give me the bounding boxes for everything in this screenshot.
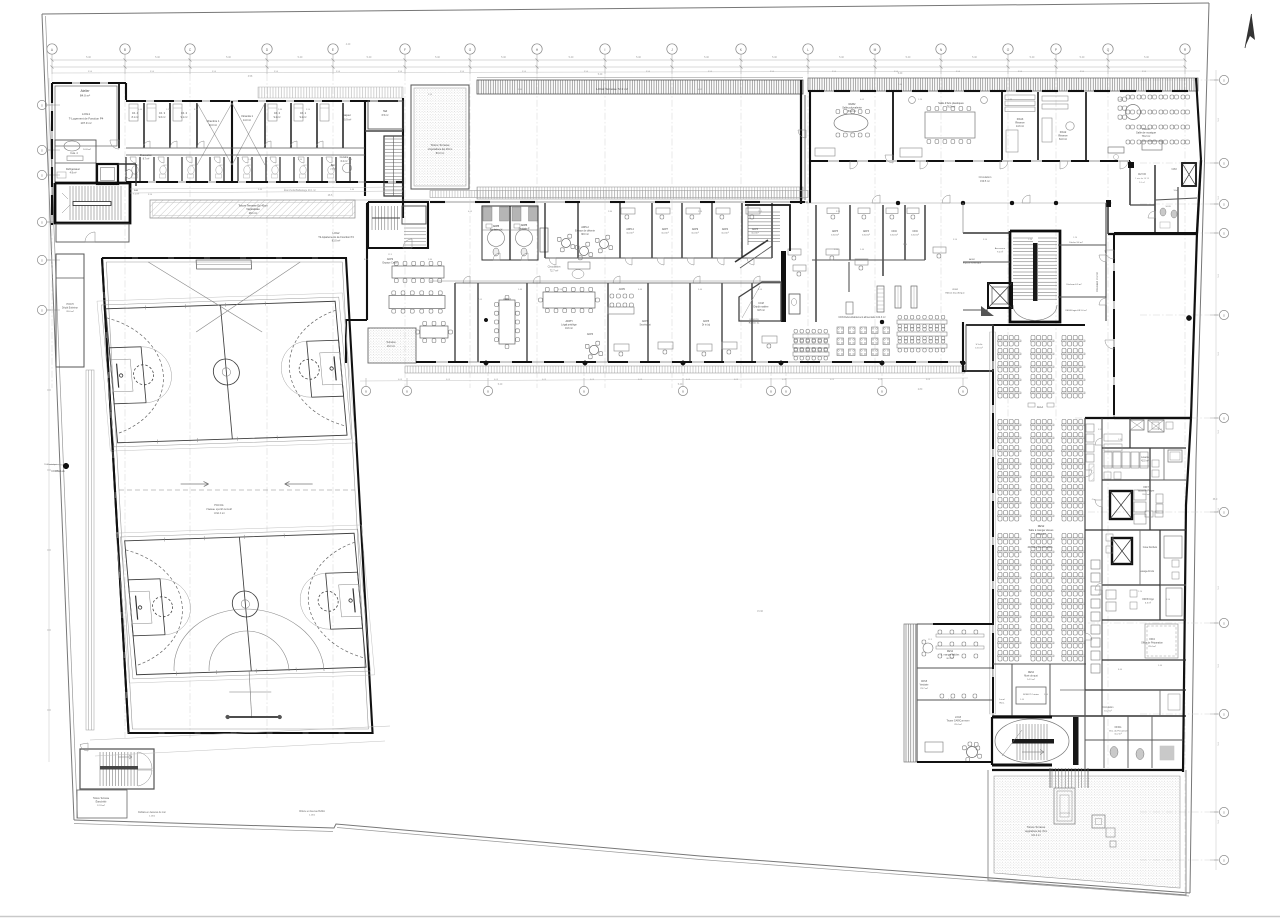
svg-text:FOA3: FOA3 bbox=[1017, 118, 1024, 121]
svg-text:LOG1: LOG1 bbox=[82, 112, 90, 116]
svg-text:G: G bbox=[1223, 712, 1225, 716]
svg-text:RES2: RES2 bbox=[1038, 525, 1045, 528]
svg-text:WC: WC bbox=[163, 165, 167, 167]
svg-text:WC: WC bbox=[191, 165, 195, 167]
svg-text:ADP4: ADP4 bbox=[722, 228, 729, 231]
svg-text:M: M bbox=[874, 48, 877, 52]
svg-text:76.5 m²: 76.5 m² bbox=[947, 106, 956, 109]
svg-text:CDI4: CDI4 bbox=[912, 231, 918, 233]
svg-text:5.40: 5.40 bbox=[501, 56, 506, 59]
svg-text:Laverie: Laverie bbox=[1141, 456, 1150, 459]
svg-text:Séjour: Séjour bbox=[343, 113, 351, 117]
svg-text:AULA: AULA bbox=[1037, 406, 1044, 409]
svg-text:Evacuation: Evacuation bbox=[140, 154, 152, 157]
svg-text:28.0 m²: 28.0 m² bbox=[66, 310, 74, 313]
svg-text:ADB2: ADB2 bbox=[969, 258, 975, 261]
svg-text:Légal privilège: Légal privilège bbox=[561, 324, 577, 327]
svg-text:Étanchéité/Ballastage 20.1 m²: Étanchéité/Ballastage 20.1 m² bbox=[284, 189, 316, 192]
svg-text:ADPN: ADPN bbox=[619, 288, 626, 291]
svg-text:5.40: 5.40 bbox=[772, 56, 777, 59]
svg-text:42.0 m²: 42.0 m² bbox=[1141, 460, 1149, 463]
svg-text:WC: WC bbox=[247, 165, 251, 167]
svg-text:B: B bbox=[406, 389, 408, 393]
svg-text:VdB3: VdB3 bbox=[1171, 169, 1177, 171]
svg-text:13.0 m²: 13.0 m² bbox=[831, 233, 839, 236]
svg-text:5.40: 5.40 bbox=[906, 56, 911, 59]
svg-text:B: B bbox=[962, 389, 964, 393]
svg-text:5.40: 5.40 bbox=[367, 56, 372, 59]
svg-text:14.6 m²: 14.6 m² bbox=[1016, 125, 1024, 128]
svg-text:G: G bbox=[41, 148, 43, 152]
svg-text:B: B bbox=[881, 389, 883, 393]
svg-text:G: G bbox=[1223, 858, 1225, 862]
svg-text:29.4 m²: 29.4 m² bbox=[954, 723, 962, 726]
svg-text:Plateau sportif évolutif: Plateau sportif évolutif bbox=[206, 507, 232, 511]
svg-text:8.1 m²: 8.1 m² bbox=[132, 116, 139, 119]
svg-text:L: L bbox=[807, 48, 809, 52]
svg-text:13.0 m²: 13.0 m² bbox=[862, 233, 870, 236]
svg-text:5.40: 5.40 bbox=[704, 56, 709, 59]
svg-text:10.8 m²: 10.8 m² bbox=[83, 148, 91, 151]
svg-text:G: G bbox=[1223, 161, 1225, 165]
svg-text:P: P bbox=[1055, 48, 1057, 52]
svg-text:5.40: 5.40 bbox=[839, 56, 844, 59]
svg-text:Espace Caser: Espace Caser bbox=[382, 262, 397, 265]
svg-text:ADP14: ADP14 bbox=[626, 228, 634, 231]
svg-text:S.DB: S.DB bbox=[1165, 206, 1171, 208]
svg-text:4.40: 4.40 bbox=[346, 44, 351, 46]
svg-text:Réserve: Réserve bbox=[1015, 122, 1025, 125]
svg-text:28.1 m²: 28.1 m² bbox=[249, 212, 258, 215]
svg-text:Circulation: Circulation bbox=[979, 175, 992, 179]
svg-text:19.6 m²: 19.6 m² bbox=[565, 327, 573, 330]
svg-text:1150.0 m²: 1150.0 m² bbox=[214, 512, 225, 515]
svg-text:Circulation 14.2 m²: Circulation 14.2 m² bbox=[1096, 272, 1099, 292]
svg-text:RHB2: RHB2 bbox=[849, 102, 856, 106]
svg-text:232.3 m²: 232.3 m² bbox=[1036, 533, 1046, 536]
svg-text:DEHOR: DEHOR bbox=[1138, 174, 1147, 176]
svg-text:Local: Local bbox=[999, 699, 1005, 701]
svg-text:11.2 m²: 11.2 m² bbox=[1114, 733, 1122, 736]
svg-text:G: G bbox=[1223, 202, 1225, 206]
svg-text:Atelier: Atelier bbox=[80, 89, 90, 93]
svg-text:72.7 m²: 72.7 m² bbox=[550, 270, 559, 273]
svg-text:14.0 m²: 14.0 m² bbox=[243, 119, 251, 122]
svg-text:Clôture en Avenue Buffon: Clôture en Avenue Buffon bbox=[299, 810, 326, 813]
svg-text:CCM: CCM bbox=[758, 302, 763, 305]
svg-text:Edition discothèque: Edition discothèque bbox=[945, 291, 965, 294]
svg-text:B: B bbox=[785, 389, 787, 393]
svg-text:2.80: 2.80 bbox=[918, 389, 923, 391]
svg-text:Ch. 2: Ch. 2 bbox=[274, 111, 281, 115]
svg-text:Décham 6.5 m²: Décham 6.5 m² bbox=[1067, 283, 1082, 286]
svg-text:ADP8: ADP8 bbox=[703, 320, 710, 323]
svg-text:ADPB: ADPB bbox=[521, 224, 528, 227]
svg-text:1.13m: 1.13m bbox=[149, 816, 155, 818]
svg-text:Sanitaires H: Sanitaires H bbox=[490, 228, 503, 231]
svg-text:Terrasse: Terrasse bbox=[386, 341, 396, 344]
svg-text:T-Logement de Fonction P4: T-Logement de Fonction P4 bbox=[69, 117, 104, 121]
svg-text:WC: WC bbox=[303, 165, 307, 167]
svg-text:107.9 m²: 107.9 m² bbox=[80, 121, 91, 125]
svg-text:Déblais en dessous du mur: Déblais en dessous du mur bbox=[138, 811, 166, 814]
svg-text:Dépôt matière: Dépôt matière bbox=[753, 306, 769, 309]
svg-text:1 min de 10 13: 1 min de 10 13 bbox=[1135, 178, 1150, 180]
svg-text:Chambre 1: Chambre 1 bbox=[207, 119, 220, 123]
svg-text:23.7 m²: 23.7 m² bbox=[920, 687, 928, 690]
svg-text:F: F bbox=[404, 48, 406, 52]
svg-text:B: B bbox=[770, 389, 772, 393]
svg-text:13.5 m²: 13.5 m² bbox=[975, 346, 983, 349]
svg-text:20.9 m²: 20.9 m² bbox=[343, 119, 352, 122]
svg-text:S.Vslle: S.Vslle bbox=[976, 344, 984, 346]
svg-text:CORBEILLE: CORBEILLE bbox=[51, 470, 65, 473]
svg-text:9.1 m²: 9.1 m² bbox=[181, 116, 188, 119]
svg-text:ADP9: ADP9 bbox=[387, 258, 394, 261]
svg-text:78.2 m²: 78.2 m² bbox=[1142, 135, 1151, 138]
svg-text:Bur.: Bur. bbox=[331, 164, 336, 167]
svg-text:ADP7: ADP7 bbox=[662, 228, 669, 231]
svg-text:OFF5 Frigo: OFF5 Frigo bbox=[1142, 598, 1154, 601]
svg-text:Tisane GAR/Com-serv: Tisane GAR/Com-serv bbox=[946, 720, 970, 723]
svg-text:400 sans personnalisés: 400 sans personnalisés bbox=[1027, 546, 1053, 549]
svg-text:S. manger adultes: S. manger adultes bbox=[941, 654, 960, 657]
svg-text:Salle polyvalente: Salle polyvalente bbox=[842, 106, 862, 110]
svg-text:Rest.: Rest. bbox=[999, 701, 1004, 704]
svg-text:Secrétariat: Secrétariat bbox=[639, 324, 650, 327]
svg-text:84.0 m²: 84.0 m² bbox=[80, 94, 90, 98]
svg-text:Toiture Terrasse: Toiture Terrasse bbox=[430, 143, 450, 147]
svg-text:5.40: 5.40 bbox=[226, 56, 231, 59]
svg-text:ROBOT Cuisine: ROBOT Cuisine bbox=[1023, 694, 1039, 696]
svg-text:5.40: 5.40 bbox=[569, 56, 574, 59]
svg-text:Lavage-Fruits: Lavage-Fruits bbox=[1140, 570, 1155, 573]
svg-text:9.2 m²: 9.2 m² bbox=[300, 116, 307, 119]
svg-text:LOG2: LOG2 bbox=[333, 231, 340, 235]
svg-text:Vaisselle-Propre: Vaisselle-Propre bbox=[1138, 490, 1155, 493]
svg-text:28.5: 28.5 bbox=[328, 195, 333, 197]
svg-text:10.0 m²: 10.0 m² bbox=[209, 124, 217, 127]
svg-text:Cave Déchets: Cave Déchets bbox=[1143, 546, 1158, 549]
svg-text:FOA2: FOA2 bbox=[1060, 131, 1067, 134]
svg-text:5.40: 5.40 bbox=[898, 73, 903, 75]
svg-text:G: G bbox=[1223, 621, 1225, 625]
svg-text:Décha 3.4 m²: Décha 3.4 m² bbox=[1069, 241, 1082, 244]
svg-text:12.9 m²: 12.9 m² bbox=[97, 804, 105, 807]
svg-text:159.5 m²: 159.5 m² bbox=[980, 180, 990, 183]
svg-text:Ch. 4: Ch. 4 bbox=[132, 111, 139, 115]
svg-text:5.40: 5.40 bbox=[155, 56, 160, 59]
svg-text:16.0 m²: 16.0 m² bbox=[387, 345, 395, 348]
svg-text:1.13m: 1.13m bbox=[309, 815, 315, 817]
svg-text:14.1 m²: 14.1 m² bbox=[1027, 678, 1035, 681]
svg-text:B: B bbox=[583, 389, 585, 393]
svg-text:G: G bbox=[41, 258, 43, 262]
svg-text:OFF2: OFF2 bbox=[1149, 639, 1156, 641]
svg-text:Véranda 1: Véranda 1 bbox=[241, 114, 254, 118]
svg-text:G: G bbox=[41, 173, 43, 177]
svg-text:11.4 m²: 11.4 m² bbox=[721, 232, 729, 235]
svg-text:Toiture Terrasse: Toiture Terrasse bbox=[93, 797, 110, 800]
svg-text:5.40: 5.40 bbox=[1144, 56, 1149, 59]
svg-text:CDB2: CDB2 bbox=[952, 289, 959, 291]
svg-text:G: G bbox=[1223, 313, 1225, 317]
svg-text:5.40: 5.40 bbox=[1030, 56, 1035, 59]
svg-text:RES0: RES0 bbox=[1028, 672, 1035, 674]
svg-text:G: G bbox=[41, 220, 43, 224]
svg-text:Sanitaire F: Sanitaire F bbox=[518, 227, 530, 230]
svg-text:5.40: 5.40 bbox=[1080, 56, 1085, 59]
svg-text:ADPL2: ADPL2 bbox=[581, 226, 589, 229]
svg-text:5.40: 5.40 bbox=[636, 56, 641, 59]
svg-text:Ch. 1: Ch. 1 bbox=[300, 111, 307, 115]
svg-text:ADPH: ADPH bbox=[566, 320, 573, 323]
svg-text:5.40: 5.40 bbox=[435, 56, 440, 59]
svg-text:29.4 m²: 29.4 m² bbox=[1148, 645, 1156, 648]
svg-text:Dépôt Extérieur: Dépôt Extérieur bbox=[62, 307, 78, 310]
svg-text:5.40: 5.40 bbox=[678, 384, 683, 386]
svg-text:Réserve: Réserve bbox=[1058, 135, 1068, 138]
svg-text:11.4 m²: 11.4 m² bbox=[661, 232, 669, 235]
svg-text:CDN5: CDN5 bbox=[921, 681, 928, 683]
svg-text:CDN Debout/tablement alimenta: CDN Debout/tablement alimentaire 102.3 m… bbox=[838, 316, 885, 319]
svg-text:Toiture Terrasse Ep.40cm: Toiture Terrasse Ep.40cm bbox=[238, 204, 267, 208]
svg-text:3.58: 3.58 bbox=[248, 76, 253, 78]
svg-text:5.40: 5.40 bbox=[298, 56, 303, 59]
svg-text:RdB: RdB bbox=[134, 190, 139, 192]
svg-text:15.96: 15.96 bbox=[757, 611, 763, 613]
svg-text:16.2 m²: 16.2 m² bbox=[1104, 709, 1112, 712]
svg-text:13.0 m²: 13.0 m² bbox=[890, 233, 898, 236]
svg-text:B: B bbox=[124, 48, 126, 52]
svg-text:ADP1: ADP1 bbox=[642, 320, 649, 323]
svg-text:G: G bbox=[1223, 78, 1225, 82]
svg-text:ADPB: ADPB bbox=[493, 225, 500, 228]
svg-text:POCH4: POCH4 bbox=[214, 503, 224, 507]
svg-text:Mont-du-quai: Mont-du-quai bbox=[1024, 675, 1038, 678]
svg-text:B: B bbox=[682, 389, 684, 393]
svg-text:Espace de détente: Espace de détente bbox=[575, 230, 596, 233]
svg-text:33.5 m²: 33.5 m² bbox=[757, 309, 765, 312]
svg-text:Espace numérique: Espace numérique bbox=[963, 261, 982, 264]
svg-text:Salle d'Arts plastiques: Salle d'Arts plastiques bbox=[938, 101, 964, 105]
svg-text:G: G bbox=[1223, 231, 1225, 235]
svg-text:ADP10: ADP10 bbox=[503, 298, 511, 301]
svg-text:5.3 m²: 5.3 m² bbox=[1145, 602, 1151, 605]
svg-text:WbB: WbB bbox=[1174, 190, 1179, 192]
svg-text:83.0 m²: 83.0 m² bbox=[436, 152, 445, 155]
svg-text:B: B bbox=[487, 389, 489, 393]
svg-text:6.5 m²: 6.5 m² bbox=[382, 114, 389, 117]
svg-text:ADP3: ADP3 bbox=[863, 230, 870, 233]
svg-text:ADP5: ADP5 bbox=[832, 230, 839, 233]
svg-text:Circulation: Circulation bbox=[548, 265, 561, 269]
svg-text:G: G bbox=[41, 103, 43, 107]
svg-text:POCH: POCH bbox=[67, 303, 74, 306]
svg-text:LOG2 Terrasse 72.3 m²: LOG2 Terrasse 72.3 m² bbox=[596, 87, 627, 91]
svg-text:Ascenseur: Ascenseur bbox=[995, 247, 1006, 250]
svg-text:5.40: 5.40 bbox=[498, 384, 503, 386]
svg-text:I: I bbox=[605, 48, 606, 52]
svg-text:9.6 m²: 9.6 m² bbox=[159, 116, 166, 119]
svg-text:5.40: 5.40 bbox=[598, 74, 603, 76]
svg-text:Circulation: Circulation bbox=[1103, 706, 1115, 709]
svg-text:OFF11: OFF11 bbox=[1115, 727, 1123, 729]
svg-text:Dr in (a): Dr in (a) bbox=[702, 324, 711, 327]
svg-text:WC: WC bbox=[275, 165, 279, 167]
svg-text:36.3 m²: 36.3 m² bbox=[946, 657, 954, 660]
svg-text:13.0 m²: 13.0 m² bbox=[911, 233, 919, 236]
svg-text:G: G bbox=[1223, 416, 1225, 420]
svg-text:T2-Apartements de Fonction P4: T2-Apartements de Fonction P4 bbox=[318, 236, 354, 239]
svg-text:Étanchéité: Étanchéité bbox=[96, 801, 108, 804]
svg-text:OFF7: OFF7 bbox=[1143, 487, 1150, 489]
svg-text:Salle à manger élèves: Salle à manger élèves bbox=[1029, 529, 1054, 532]
svg-text:101.2 m²: 101.2 m² bbox=[1031, 834, 1041, 837]
svg-text:2.0 m²: 2.0 m² bbox=[1139, 181, 1145, 184]
svg-text:LOG5: LOG5 bbox=[955, 717, 962, 719]
svg-text:Réfrigérateur: Réfrigérateur bbox=[66, 168, 80, 171]
svg-text:7.0 m²: 7.0 m² bbox=[997, 250, 1003, 253]
svg-text:9.2 m²: 9.2 m² bbox=[274, 116, 281, 119]
svg-text:G: G bbox=[41, 308, 43, 312]
svg-text:Végétalisée Ep.30cm: Végétalisée Ep.30cm bbox=[428, 147, 453, 151]
svg-text:Cuis. 4: Cuis. 4 bbox=[70, 152, 78, 155]
svg-text:E: E bbox=[332, 48, 334, 52]
svg-text:11.4 m²: 11.4 m² bbox=[626, 232, 634, 235]
svg-text:Office de Préparation: Office de Préparation bbox=[1141, 642, 1163, 645]
svg-text:Ch. 2: Ch. 2 bbox=[181, 111, 188, 115]
svg-text:Routine ka: Routine ka bbox=[749, 321, 760, 324]
svg-text:Ch. 3: Ch. 3 bbox=[159, 111, 166, 115]
svg-text:8.7 m²: 8.7 m² bbox=[143, 157, 150, 160]
svg-text:Toiture Terrasse: Toiture Terrasse bbox=[1027, 825, 1046, 829]
svg-text:Vestiaire: Vestiaire bbox=[920, 684, 930, 687]
svg-text:B: B bbox=[365, 389, 367, 393]
svg-text:Salle de musique: Salle de musique bbox=[1136, 131, 1156, 135]
svg-text:53.2 m²: 53.2 m² bbox=[848, 110, 857, 113]
svg-text:64.0 m²: 64.0 m² bbox=[1059, 138, 1067, 141]
svg-text:WC: WC bbox=[219, 165, 223, 167]
svg-text:RES2: RES2 bbox=[947, 650, 954, 653]
svg-text:4.9 m²: 4.9 m² bbox=[70, 172, 77, 175]
svg-text:Végétalisée: Végétalisée bbox=[246, 207, 260, 211]
svg-text:CDI4: CDI4 bbox=[891, 231, 897, 233]
svg-text:38.0 m²: 38.0 m² bbox=[581, 233, 589, 236]
svg-text:5.40: 5.40 bbox=[972, 56, 977, 59]
svg-text:6.2 m²: 6.2 m² bbox=[341, 160, 348, 163]
svg-text:G: G bbox=[1223, 810, 1225, 814]
svg-text:31.0 m²: 31.0 m² bbox=[1142, 493, 1150, 496]
svg-text:ADP6: ADP6 bbox=[587, 333, 594, 336]
svg-text:ADP9: ADP9 bbox=[692, 228, 699, 231]
svg-text:11.4 m²: 11.4 m² bbox=[691, 232, 699, 235]
svg-text:RES8 Engin-U8 9.0 m²: RES8 Engin-U8 9.0 m² bbox=[1065, 309, 1086, 312]
svg-text:Circ.: Circ. bbox=[1092, 498, 1097, 501]
svg-text:G: G bbox=[1223, 510, 1225, 514]
svg-text:PGAU: PGAU bbox=[1142, 127, 1149, 131]
svg-text:38.0: 38.0 bbox=[1213, 499, 1218, 501]
svg-text:2.2m²: 2.2m² bbox=[330, 168, 336, 171]
svg-text:Hall: Hall bbox=[383, 110, 388, 113]
svg-text:végétalisée Ep. 8cm: végétalisée Ep. 8cm bbox=[1025, 830, 1048, 833]
svg-text:83.0 m²: 83.0 m² bbox=[332, 240, 341, 243]
svg-text:5.40: 5.40 bbox=[86, 56, 91, 59]
svg-text:Vest. du Personnel: Vest. du Personnel bbox=[1109, 729, 1128, 732]
